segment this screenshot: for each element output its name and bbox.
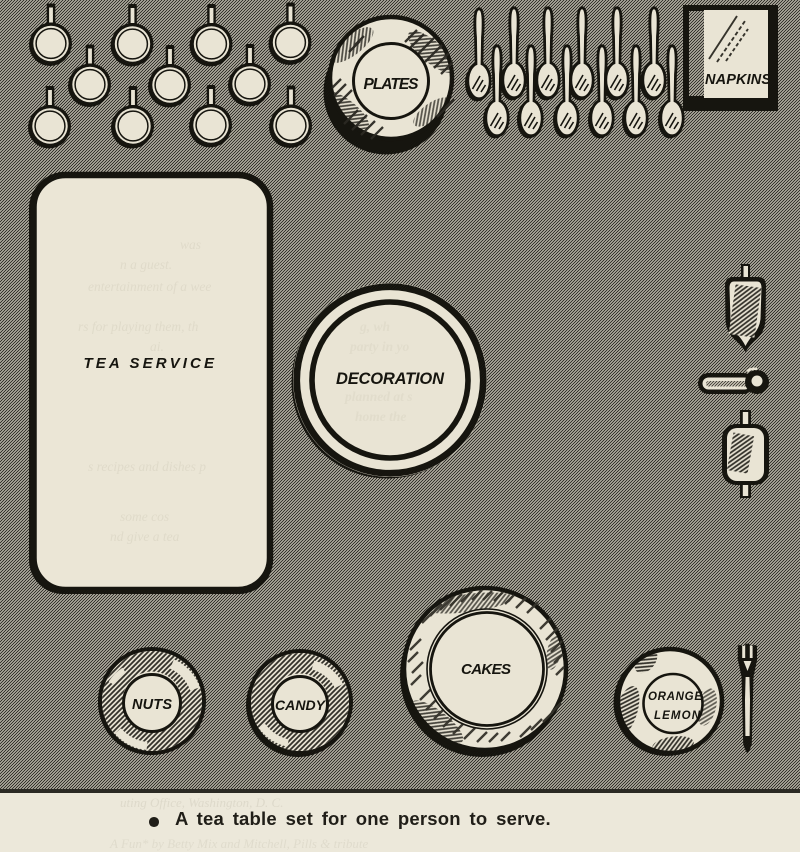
svg-text:n a guest.: n a guest. <box>120 257 172 272</box>
svg-text:ai.: ai. <box>150 339 164 354</box>
svg-text:ORANGE: ORANGE <box>648 691 702 703</box>
svg-text:s recipes and dishes p: s recipes and dishes p <box>88 459 206 474</box>
svg-text:nd give a tea: nd give a tea <box>110 529 180 544</box>
svg-text:rs for playing them, th: rs for playing them, th <box>78 319 199 334</box>
svg-text:DECORATION: DECORATION <box>336 370 445 388</box>
svg-text:CANDY: CANDY <box>275 697 327 713</box>
svg-text:PLATES: PLATES <box>364 76 420 93</box>
svg-text:planned at s: planned at s <box>344 389 413 404</box>
svg-text:CAKES: CAKES <box>461 661 511 678</box>
svg-text:home the: home the <box>355 409 406 424</box>
svg-text:party in yo: party in yo <box>349 339 409 354</box>
svg-text:was: was <box>180 237 201 252</box>
svg-text:NUTS: NUTS <box>132 697 172 713</box>
svg-text:LEMON: LEMON <box>654 710 701 722</box>
svg-text:NAPKINS: NAPKINS <box>705 72 771 88</box>
svg-text:entertainment of a wee: entertainment of a wee <box>88 279 211 294</box>
svg-text:some cos: some cos <box>120 509 169 524</box>
svg-text:g, wh: g, wh <box>359 319 390 334</box>
svg-text:TEA SERVICE: TEA SERVICE <box>84 355 217 372</box>
